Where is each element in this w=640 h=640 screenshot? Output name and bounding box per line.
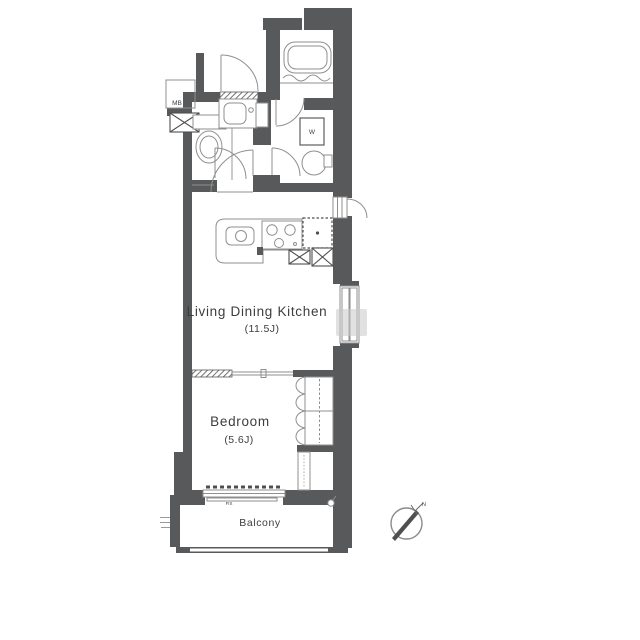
wall-segment (283, 490, 333, 505)
wall-segment (304, 98, 333, 110)
floor-plan-drawing: MB W (0, 0, 640, 640)
partition-hatched-wall (192, 370, 232, 377)
wall-segment (333, 216, 352, 284)
casement-window-frame (333, 197, 347, 218)
powder-door-swing-arc (272, 148, 300, 176)
closet-bifold-arc (296, 394, 305, 411)
bathtub-inner (288, 46, 327, 69)
wall-segment (333, 8, 352, 198)
wall-cabinet (256, 103, 268, 127)
closet-bifold-arc (296, 377, 305, 394)
bathroom (276, 42, 333, 126)
wall-segment (266, 18, 280, 100)
closet-bifold-arc (296, 428, 305, 445)
floor-plan-page: MB W (0, 0, 640, 640)
partition (192, 370, 293, 378)
refrigerator-dot (316, 231, 319, 234)
entrance-door-swing-arc (221, 55, 258, 91)
wall-segment (297, 445, 333, 452)
compass-north-label: N (422, 502, 426, 508)
wall-segment (293, 370, 333, 377)
bedroom-label: Bedroom (210, 414, 270, 429)
wall-segment (253, 175, 280, 192)
window-cap (340, 281, 359, 286)
window-fix-label: FIX (226, 501, 233, 506)
wall-segment (333, 346, 352, 495)
counter-step (257, 247, 263, 255)
drain-symbol (328, 500, 334, 506)
bedroom-window-sill (207, 498, 277, 501)
window-cap (340, 343, 359, 348)
washing-machine-label: W (309, 129, 316, 136)
ldk-room: Living Dining Kitchen (11.5J) (187, 281, 367, 348)
wall-segment (183, 92, 192, 455)
balcony-railing-inner (190, 549, 328, 552)
wall-segment (333, 495, 352, 548)
ldk-label: Living Dining Kitchen (187, 304, 328, 319)
pipe-space-box (298, 452, 310, 490)
sliding-door-handle (261, 370, 266, 378)
wall-segment (183, 92, 220, 102)
basin-counter (324, 155, 332, 167)
wall-segment (280, 183, 333, 192)
compass: N (391, 502, 426, 541)
bathtub (284, 42, 331, 73)
balcony-label: Balcony (239, 517, 281, 529)
wall-segment (170, 495, 180, 547)
powder-room: W (272, 118, 332, 176)
meter-box-label: MB (172, 100, 182, 107)
entrance (220, 55, 258, 99)
casement-window-swing-arc (347, 199, 367, 218)
bathtub-wave (283, 75, 330, 81)
bedroom-room: Bedroom (5.6J) FIX (203, 377, 333, 506)
watermark (336, 309, 367, 336)
wall-segment (196, 53, 204, 93)
entrance-sill (220, 92, 258, 99)
round-basin (302, 151, 326, 175)
ldk-size-label: (11.5J) (245, 323, 280, 335)
closet-bifold-arc (296, 411, 305, 428)
bedroom-size-label: (5.6J) (224, 434, 253, 446)
